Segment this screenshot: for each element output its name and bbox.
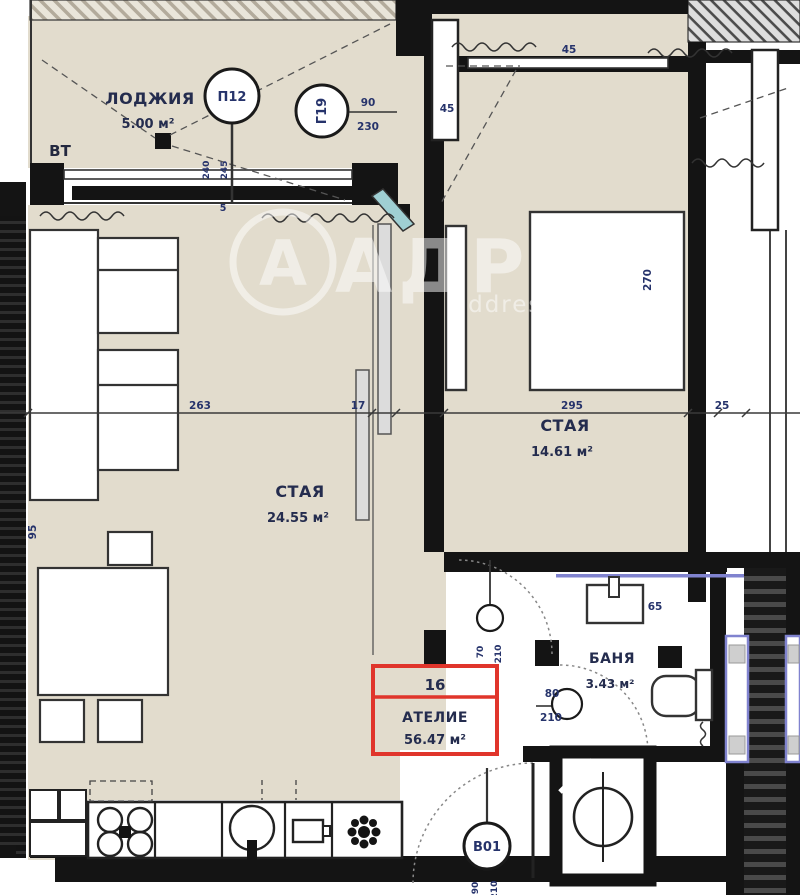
elevator-car-c bbox=[788, 645, 799, 663]
elevator-car-d bbox=[788, 736, 799, 754]
bath-name: БАНЯ bbox=[589, 651, 635, 667]
loggia-door-height: 230 bbox=[357, 121, 379, 133]
unit-type: АТЕЛИЕ bbox=[402, 710, 468, 726]
living-area: 24.55 м² bbox=[267, 511, 329, 526]
entry-door-id: В01 bbox=[473, 840, 501, 855]
loggia-door-id: Г19 bbox=[315, 98, 330, 124]
elevator-car-b bbox=[729, 736, 745, 754]
sink-tap bbox=[609, 577, 619, 597]
entry-door-dim-b: 210 bbox=[490, 881, 500, 895]
elevator-car-a bbox=[729, 645, 745, 663]
dining-chair-bottom-b bbox=[98, 700, 142, 742]
dim-living-width: 263 bbox=[189, 400, 211, 412]
bath-right-wall bbox=[710, 572, 726, 762]
loggia-top-wall bbox=[30, 0, 396, 20]
glass-panel-b bbox=[356, 370, 369, 520]
dining-chair-top bbox=[108, 532, 152, 565]
bath-area: 3.43 м² bbox=[586, 677, 635, 691]
window-dim-a: 240 bbox=[202, 161, 212, 180]
shaft-column bbox=[432, 20, 458, 140]
bottom-left-mark-a bbox=[0, 845, 16, 857]
stair-left-rail bbox=[726, 762, 744, 895]
bath-door-height: 210 bbox=[540, 712, 562, 724]
toilet-bowl bbox=[652, 676, 700, 716]
toilet-tank bbox=[696, 670, 712, 720]
stairwell-hatch-block bbox=[688, 0, 800, 42]
loggia-door-width: 90 bbox=[361, 97, 376, 109]
dim-bedroom-width: 295 bbox=[561, 400, 583, 412]
dining-table bbox=[38, 568, 168, 695]
sink-tap-handle bbox=[247, 840, 257, 860]
entry-door-dim-a: 90 bbox=[471, 882, 481, 895]
vt-label: ВТ bbox=[49, 142, 71, 160]
window-sill-bar bbox=[72, 186, 358, 200]
stair-right-rail-bottom bbox=[786, 762, 800, 895]
sofa-cushion-lower bbox=[98, 350, 178, 470]
window-dim-b: 245 bbox=[220, 161, 230, 180]
right-corner-wall bbox=[776, 50, 800, 64]
center-top-column bbox=[396, 0, 432, 56]
hall-door-balloon bbox=[477, 605, 503, 631]
top-mark: 45 bbox=[562, 44, 577, 56]
appliance-b bbox=[60, 790, 86, 820]
floorplan-canvas: 263 17 295 25 П12 240 245 Г19 90 230 70 … bbox=[0, 0, 800, 895]
bath-top-wall bbox=[444, 552, 727, 572]
stair-right-rail-top bbox=[786, 556, 800, 636]
right-window-column bbox=[752, 50, 778, 230]
hall-door-dim-a: 70 bbox=[476, 646, 486, 659]
living-name: СТАЯ bbox=[275, 482, 324, 501]
left-height-mark: 95 bbox=[27, 525, 39, 540]
sofa-cushion-upper bbox=[98, 238, 178, 333]
vent-fan-icon bbox=[348, 816, 381, 849]
watermark-letter: А bbox=[259, 227, 307, 300]
small-appliance-nub bbox=[323, 826, 330, 836]
bath-door-width: 80 bbox=[545, 688, 560, 700]
sill-mark: 5 bbox=[220, 203, 227, 214]
right-wall bbox=[688, 42, 706, 602]
sink-mark: 65 bbox=[648, 601, 663, 613]
sofa-long-section bbox=[30, 230, 98, 500]
window-left-block bbox=[30, 163, 64, 205]
entry-top-wall bbox=[432, 0, 688, 14]
unit-number: 16 bbox=[425, 676, 446, 694]
hall-door-block-right bbox=[535, 640, 559, 666]
hall-door-block-left bbox=[424, 630, 446, 666]
entry-mark: 45 bbox=[440, 103, 455, 115]
dining-chair-bottom-a bbox=[40, 700, 84, 742]
small-appliance bbox=[293, 820, 323, 842]
left-outer-wall bbox=[0, 213, 26, 858]
dim-partition: 17 bbox=[351, 400, 366, 412]
appliance-c bbox=[30, 822, 86, 856]
unit-area: 56.47 м² bbox=[404, 733, 466, 748]
staircase-treads bbox=[744, 556, 786, 895]
appliance-a bbox=[30, 790, 58, 820]
bedroom-name: СТАЯ bbox=[540, 416, 589, 435]
left-wall-block bbox=[0, 182, 26, 216]
bath-shaft-block bbox=[658, 646, 682, 668]
hall-door-dim-b: 210 bbox=[494, 645, 504, 664]
loggia-name: ЛОДЖИЯ bbox=[105, 89, 194, 108]
watermark-site: address.bg bbox=[452, 292, 599, 318]
floorplan-svg: 263 17 295 25 П12 240 245 Г19 90 230 70 … bbox=[0, 0, 800, 895]
stove-center bbox=[119, 826, 131, 838]
loggia-area: 5.00 м² bbox=[122, 117, 175, 132]
loggia-node-dot bbox=[155, 133, 171, 149]
window-balloon-id: П12 bbox=[218, 90, 247, 105]
bedroom-area: 14.61 м² bbox=[531, 445, 593, 460]
dim-wall: 25 bbox=[715, 400, 730, 412]
